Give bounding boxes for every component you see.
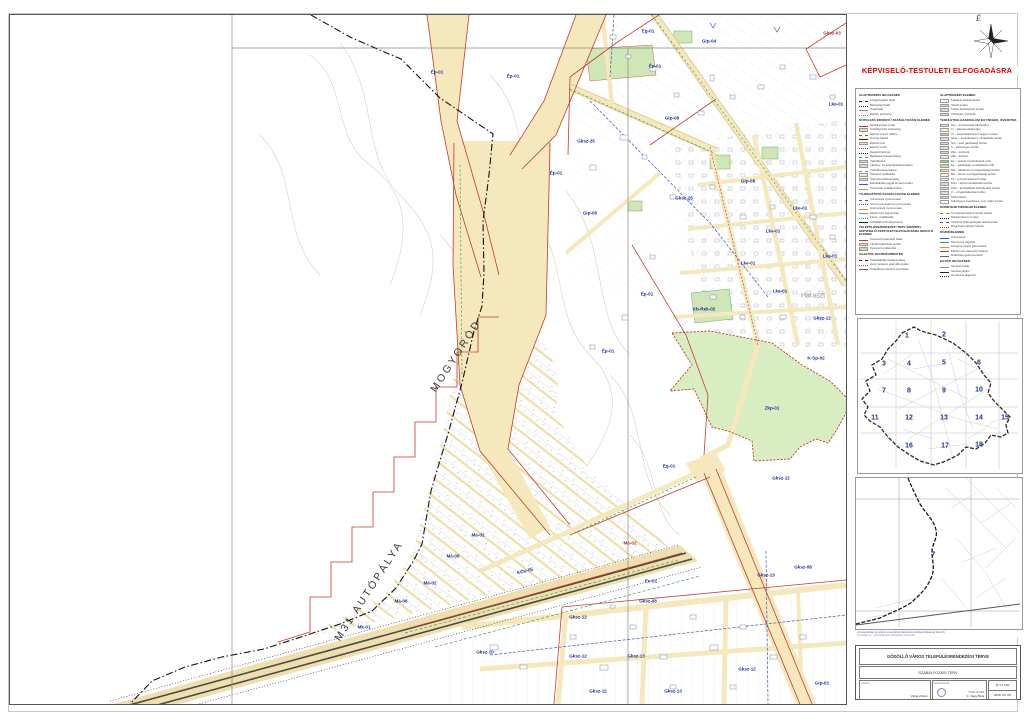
legend-swatch [940, 155, 949, 159]
title-block-grid: tervező: Varga Zoltán vezető tervező: TT… [859, 680, 1017, 700]
legend-swatch [859, 142, 868, 146]
designer-cell: tervező: Varga Zoltán [859, 680, 931, 700]
legend-swatch [940, 104, 949, 108]
legend-label: Kialakult telekstruktúra [951, 99, 980, 102]
legend-swatch [940, 218, 949, 219]
index-sheet-number: 15 [1001, 415, 1009, 422]
plan-subtitle: SZABÁLYOZÁSI TERV [918, 671, 957, 675]
index-sheet-number: 12 [905, 415, 913, 422]
index-map-canvas [858, 319, 1020, 471]
legend-swatch [859, 173, 868, 177]
legend-swatch [940, 133, 949, 137]
index-sheet-number: 16 [905, 443, 913, 450]
legend-swatch [859, 204, 868, 205]
index-sheet-number: 9 [942, 388, 946, 395]
legend-section-header: ALAPTÉRKÉPI JELÖLÉSEK [859, 94, 937, 97]
legend-label: Vt – településközpont vegyes terület [951, 133, 997, 136]
index-sheet-number: 3 [882, 361, 886, 368]
locator-canvas [856, 478, 1020, 627]
legend-swatch [859, 160, 868, 164]
legend-label: Régészeti lelőhely határa [951, 225, 983, 228]
index-sheet-number: 7 [882, 388, 886, 395]
legend-label: Lf – falusias lakóterület [951, 128, 981, 131]
index-sheet-number: 13 [940, 415, 948, 422]
legend-swatch [859, 240, 868, 241]
legend-swatch [940, 256, 949, 257]
legend-swatch [859, 115, 868, 116]
legend-label: Tk – természetközeli terület [951, 178, 986, 181]
legend-swatch [940, 227, 949, 228]
legend-label: Gksz – kereskedelmi, szolgáltató terület [951, 137, 1002, 140]
legend-label: Fasor, védőfásítás [870, 216, 894, 219]
legend-swatch [859, 164, 868, 168]
legend-label: Építési övezet határa [870, 133, 897, 136]
legend-swatch [940, 146, 949, 150]
index-sheet-number: 1 [905, 333, 909, 340]
index-sheet-number: 8 [907, 388, 911, 395]
legend-swatch [940, 191, 949, 195]
legend-panel: ALAPTÉRKÉPI JELÖLÉSEKKözigazgatási határ… [855, 88, 1021, 315]
legend-label: Beültetési kötelezettség [870, 155, 901, 158]
legend-row: Geodéziai alappont [940, 273, 1018, 278]
legend-swatch [859, 148, 868, 149]
legend-swatch [859, 269, 868, 270]
locator-motorway [856, 604, 1020, 625]
legend-swatch [859, 110, 868, 111]
legend-label: Szennyvízcsatorna nyomvonala [870, 203, 911, 206]
north-arrow-icon [968, 18, 1014, 64]
legend-label: Eg – gazdasági rendeltetésű erdő [951, 164, 994, 167]
legend-label: Látvány- és településképvédelem [870, 164, 913, 167]
index-sheet-number: 6 [977, 360, 981, 367]
legend-section-header: ALAPTÉRKÉPI ELEMEK [940, 94, 1018, 97]
legend-swatch [859, 247, 868, 251]
legend-swatch [940, 178, 949, 182]
map-scale: M 1:4 000 [989, 681, 1016, 691]
legend-swatch [940, 242, 949, 243]
legend-label: Lke – kertvárosias lakóterület [951, 124, 989, 127]
locator-caption-2: A tervlap a 7. jelű szelvény területére … [857, 634, 1021, 637]
legend-swatch [940, 182, 949, 186]
designer-label: tervező: [861, 682, 870, 685]
legend-swatch [940, 267, 949, 268]
legend-label: Vasúti terület [951, 104, 968, 107]
legend-label: Földalatti közműépítmény [870, 221, 903, 224]
legend-label: K – különleges terület [951, 146, 979, 149]
legend-label: Védőfásítás [870, 160, 885, 163]
legend-row: Hírközlési gerincvezeték [940, 253, 1018, 258]
legend-label: Tervezett belterületi határ [870, 238, 902, 241]
legend-column-right: ALAPTÉRKÉPI ELEMEKKialakult telekstruktú… [940, 92, 1018, 312]
legend-swatch [940, 247, 949, 248]
legend-swatch [859, 213, 868, 214]
legend-label: Elektromos légvezeték [870, 212, 899, 215]
legend-swatch [859, 101, 868, 102]
index-map-boundary [862, 327, 1010, 465]
legend-swatch [940, 272, 949, 273]
legend-label: Megszüntető jel [870, 151, 890, 154]
title-block: GÖDÖLLŐ VÁROS TELEPÜLÉSRENDEZÉSI TERVE S… [855, 645, 1021, 700]
legend-label: Közterület szabályozása [870, 187, 901, 190]
legend-swatch [940, 137, 949, 141]
legend-label: Övezet határa [870, 137, 888, 140]
plan-sheet: Ép-01Ép-01Eg-01Gksz-03Gip-04Ép-01Gksz-25… [0, 0, 1024, 723]
locator-captions: Az alaptérkép az állami topográfiai alap… [857, 631, 1021, 638]
index-sheet-number: 18 [975, 442, 983, 449]
legend-label: Véderdősáv [951, 196, 966, 199]
legend-label: Szelvényhatár [951, 265, 969, 268]
legend-label: Vízvezeték [951, 236, 965, 239]
legend-swatch [859, 265, 868, 266]
legend-row: Különleges beépítésre nem szánt terület [940, 200, 1018, 205]
locator-boundary [856, 478, 936, 624]
legend-swatch [859, 184, 868, 185]
locator-map: 7 [855, 477, 1023, 630]
legend-label: Belterületi határ [870, 104, 890, 107]
legend-swatch [940, 213, 949, 214]
legend-row: Épület, építmény [859, 112, 937, 117]
legend-label: Építési hely [870, 142, 885, 145]
legend-swatch [940, 151, 949, 155]
legend-label: Nitrátérzékeny terület [951, 216, 978, 219]
legend-label: Különleges beépítésre nem szánt terület [951, 200, 1003, 203]
legend-column-left: ALAPTÉRKÉPI JELÖLÉSEKKözigazgatási határ… [859, 92, 937, 312]
legend-label: V – vízgazdálkodási terület [951, 191, 986, 194]
legend-label: Természetvédelmi terület határa [951, 212, 992, 215]
legend-label: Útépítési kötelezettség [870, 178, 899, 181]
lead-designer-label: vezető tervező: [934, 682, 950, 685]
legend-swatch [940, 173, 949, 177]
legend-section-header: SAJÁTOS JOGINTÉZMÉNYEK [859, 253, 937, 256]
scale-date-cell: M 1:4 000 2008. 05. 08. [988, 680, 1017, 700]
legend-row: Földalatti közműépítmény [859, 220, 937, 225]
legend-section-header: TERÜLETFELHASZNÁLÁSI EGYSÉGEK, ÖVEZETEK [940, 119, 1018, 122]
legend-swatch [940, 222, 949, 223]
legend-swatch [859, 126, 868, 127]
legend-swatch [859, 135, 868, 136]
lead-designer-name: K. Nagy Béla [967, 694, 985, 698]
legend-swatch [940, 169, 949, 173]
legend-label: Mk – kertes mezőgazdasági terület [951, 173, 996, 176]
legend-swatch [940, 251, 949, 252]
locator-sheet-number: 7 [931, 551, 935, 560]
index-sheet-number: 14 [975, 415, 983, 422]
legend-label: Közúti közlekedési terület [951, 108, 984, 111]
index-sheet-number: 11 [871, 415, 878, 422]
stamp-icon [937, 688, 946, 697]
legend-label: Telekalakítási kötelezettség [870, 259, 905, 262]
legend-label: Középnyomású gázvezeték [951, 245, 986, 248]
legend-section-header: KÖRNYEZETVÉDELMI ELEMEK [940, 206, 1018, 209]
index-sheet-number: 4 [907, 361, 911, 368]
legend-label: Távlati fejlesztési terület [870, 243, 901, 246]
legend-label: KÖk – kötöttpályás közlekedési terület [951, 187, 1000, 190]
legend-label: Vízvezeték nyomvonala [870, 198, 901, 201]
legend-swatch [859, 153, 868, 154]
designer-name: Varga Zoltán [911, 694, 928, 698]
legend-label: Szabályozási szélesség [870, 128, 901, 131]
legend-swatch [859, 209, 868, 210]
index-sheet-number: 2 [942, 332, 946, 339]
legend-label: Szennyvíz főgyűjtő [951, 241, 975, 244]
legend-label: Helyi védelem alatt álló épület [870, 263, 908, 266]
legend-label: Geodéziai alappont [951, 274, 976, 277]
legend-swatch [859, 139, 868, 140]
legend-swatch [940, 196, 949, 200]
legend-section-header: TÁJÉKOZTATÓ SZABÁLYOZÁSI ELEMEK [859, 193, 937, 196]
legend-swatch [859, 128, 868, 132]
plan-title: GÖDÖLLŐ VÁROS TELEPÜLÉSRENDEZÉSI TERVE [887, 654, 989, 659]
index-sheet-number: 5 [942, 360, 946, 367]
legend-label: Településrendezési szerződés [870, 268, 909, 271]
legend-swatch [940, 108, 949, 112]
main-map: Ép-01Ép-01Eg-01Gksz-03Gip-04Ép-01Gksz-25… [9, 14, 847, 705]
legend-swatch [859, 243, 868, 247]
legend-swatch [940, 142, 949, 146]
legend-label: Szelvényszám [951, 270, 970, 273]
legend-label: Zkp – közpark [951, 151, 969, 154]
legend-label: Ev – védelmi rendeltetésű erdő [951, 160, 991, 163]
legend-label: Védőtávolság határa [870, 169, 897, 172]
legend-row: Régészeti lelőhely határa [940, 224, 1018, 229]
legend-swatch [940, 187, 949, 191]
title-block-subtitle: SZABÁLYOZÁSI TERV [859, 666, 1017, 679]
legend-label: Hírközlési gerincvezeték [951, 254, 982, 257]
legend-label: Vízfelület, vízfolyás [951, 113, 976, 116]
index-sheet-number: 17 [941, 443, 949, 450]
legend-label: Gázvezeték nyomvonala [870, 207, 902, 210]
title-block-main-title: GÖDÖLLŐ VÁROS TELEPÜLÉSRENDEZÉSI TERVE [859, 648, 1017, 665]
legend-label: Gip – ipari gazdasági terület [951, 142, 987, 145]
legend-swatch [859, 260, 868, 261]
legend-row: Vízfelület, vízfolyás [940, 112, 1018, 117]
legend-label: Szabályozási vonal [870, 124, 895, 127]
legend-row: Településrendezési szerződés [859, 267, 937, 272]
legend-swatch [940, 160, 949, 164]
legend-label: Telekhatár [870, 108, 883, 111]
legend-section-header: KÖZMŰELEMEK [940, 231, 1018, 234]
legend-swatch [859, 189, 868, 190]
legend-label: Elektromos főelosztó hálózat [951, 250, 988, 253]
map-canvas [10, 15, 846, 704]
legend-swatch [859, 157, 868, 158]
north-label: É [976, 14, 981, 23]
legend-label: Vízbázis hidrogeológiai védőövezete [951, 221, 998, 224]
legend-section-header: TELEPÜLÉSSZERKEZETI TERV SZERINTI, KÉPVI… [859, 226, 937, 236]
plan-date: 2008. 05. 08. [989, 691, 1016, 700]
approval-banner: KÉPVISELŐ-TESTÜLETI ELFOGADÁSRA [853, 66, 1021, 75]
legend-swatch [940, 99, 949, 103]
legend-swatch [859, 171, 868, 172]
legend-label: Kötelező zöldfelület [870, 173, 895, 176]
legend-swatch [940, 113, 949, 117]
legend-swatch [940, 276, 949, 277]
legend-swatch [859, 200, 868, 201]
legend-swatch [940, 238, 949, 239]
legend-swatch [940, 164, 949, 168]
legend-label: Közigazgatási határ [870, 99, 895, 102]
legend-label: Tervezett erdőterület [870, 247, 896, 250]
legend-swatch [859, 178, 868, 182]
legend-label: Má – általános mezőgazdasági terület [951, 169, 1000, 172]
lead-designer-cell: vezető tervező: TT/1É 13-1064 K. Nagy Bé… [932, 680, 988, 700]
legend-swatch [859, 222, 868, 223]
legend-swatch [859, 106, 868, 107]
legend-row: Tervezett erdőterület [859, 247, 937, 252]
legend-label: Épület, építmény [870, 113, 892, 116]
legend-section-header: EGYÉB JELÖLÉSEK [940, 260, 1018, 263]
legend-swatch [940, 200, 949, 204]
legend-label: Zkk – közkert [951, 155, 968, 158]
legend-swatch [859, 218, 868, 219]
index-sheet-number: 10 [975, 387, 983, 394]
legend-section-header: KÖTELEZŐ ÉRVÉNYŰ SZABÁLYOZÁSI ELEMEK [859, 119, 937, 122]
legend-label: Elővásárlási joggal érintett terület [870, 182, 913, 185]
legend-swatch [940, 128, 949, 132]
sheet-index-map: 123456789101112131415161718 [857, 318, 1023, 474]
legend-label: Építési vonal [870, 146, 887, 149]
legend-swatch [940, 124, 949, 128]
legend-label: KÖu – közúti közlekedési terület [951, 182, 992, 185]
legend-row: Közterület szabályozása [859, 186, 937, 191]
